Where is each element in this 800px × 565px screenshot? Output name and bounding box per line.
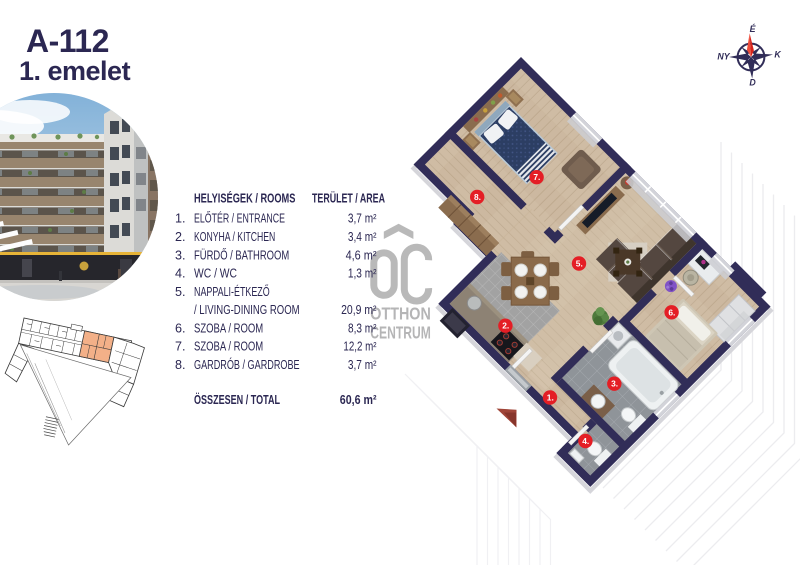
svg-text:5.: 5. <box>576 259 583 269</box>
svg-text:A-112: A-112 <box>26 23 109 59</box>
svg-text:KONYHA / KITCHEN: KONYHA / KITCHEN <box>194 230 275 244</box>
svg-text:NY: NY <box>717 52 730 62</box>
svg-text:WC / WC: WC / WC <box>194 267 237 281</box>
svg-text:8,3 m²: 8,3 m² <box>348 321 377 335</box>
svg-text:K: K <box>774 50 781 60</box>
svg-text:1,3 m²: 1,3 m² <box>348 267 377 281</box>
svg-text:OTTHON: OTTHON <box>370 304 431 324</box>
svg-text:TERÜLET / AREA: TERÜLET / AREA <box>312 190 385 205</box>
svg-text:É: É <box>750 24 757 34</box>
svg-text:7.: 7. <box>533 172 540 182</box>
svg-text:1.: 1. <box>175 212 186 226</box>
svg-text:ELŐTÉR / ENTRANCE: ELŐTÉR / ENTRANCE <box>194 211 285 226</box>
svg-text:/ LIVING-DINING ROOM: / LIVING-DINING ROOM <box>194 303 300 317</box>
svg-text:1.: 1. <box>547 393 554 403</box>
svg-text:HELYISÉGEK / ROOMS: HELYISÉGEK / ROOMS <box>194 190 295 205</box>
svg-text:ÖSSZESEN / TOTAL: ÖSSZESEN / TOTAL <box>194 392 280 407</box>
svg-text:CENTRUM: CENTRUM <box>370 323 431 343</box>
svg-text:8.: 8. <box>474 192 481 202</box>
svg-text:7.: 7. <box>175 340 186 354</box>
svg-text:3.: 3. <box>175 248 186 262</box>
svg-text:SZOBA / ROOM: SZOBA / ROOM <box>194 340 263 354</box>
svg-text:60,6 m²: 60,6 m² <box>340 393 377 407</box>
svg-text:SZOBA / ROOM: SZOBA / ROOM <box>194 321 263 335</box>
svg-text:2.: 2. <box>175 230 186 244</box>
svg-text:5.: 5. <box>175 285 186 299</box>
svg-text:FÜRDŐ / BATHROOM: FÜRDŐ / BATHROOM <box>194 247 289 262</box>
svg-text:3,7 m²: 3,7 m² <box>348 212 377 226</box>
svg-text:6.: 6. <box>668 307 675 317</box>
svg-text:D: D <box>749 78 756 88</box>
svg-text:1. emelet: 1. emelet <box>19 56 131 86</box>
svg-text:8.: 8. <box>175 358 186 372</box>
svg-text:6.: 6. <box>175 321 186 335</box>
svg-text:3.: 3. <box>611 379 618 389</box>
svg-text:3,7 m²: 3,7 m² <box>348 358 377 372</box>
svg-text:4,6 m²: 4,6 m² <box>346 248 377 262</box>
svg-text:3,4 m²: 3,4 m² <box>348 230 377 244</box>
svg-text:4.: 4. <box>582 436 589 446</box>
svg-text:4.: 4. <box>175 267 186 281</box>
svg-text:NAPPALI-ÉTKEZŐ: NAPPALI-ÉTKEZŐ <box>194 284 270 299</box>
svg-text:12,2 m²: 12,2 m² <box>343 340 376 354</box>
svg-text:GARDRÓB / GARDROBE: GARDRÓB / GARDROBE <box>194 357 300 372</box>
svg-text:2.: 2. <box>502 321 509 331</box>
svg-text:20,9 m²: 20,9 m² <box>341 303 376 317</box>
